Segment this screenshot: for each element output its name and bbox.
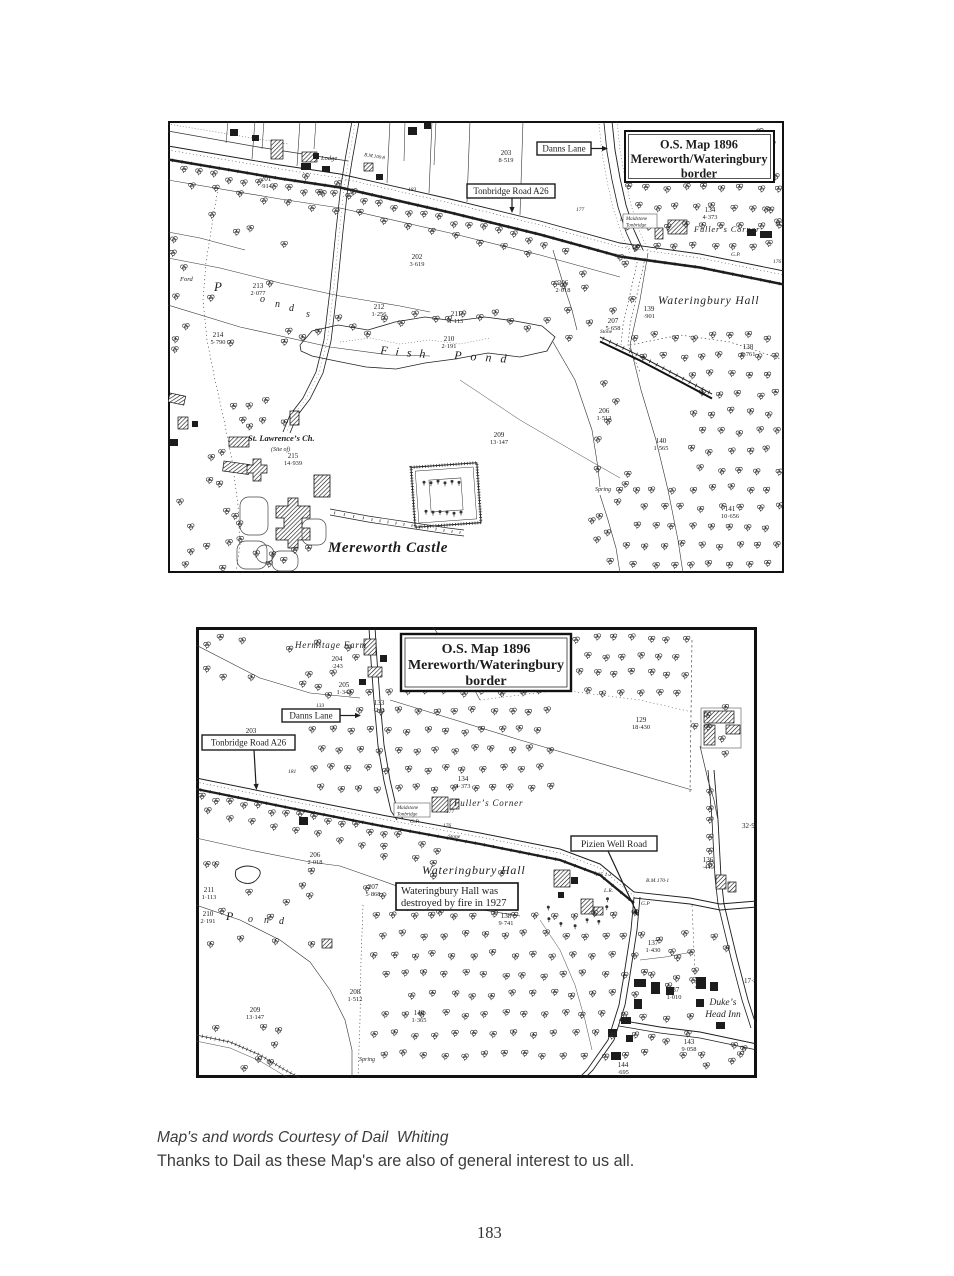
svg-text:129: 129	[636, 716, 647, 724]
svg-text:17·81: 17·81	[744, 977, 757, 985]
svg-text:Ford: Ford	[179, 276, 194, 283]
svg-text:181: 181	[288, 769, 297, 775]
svg-text:Wateringbury Hall: Wateringbury Hall	[658, 295, 759, 307]
svg-text:1·512: 1·512	[597, 415, 612, 422]
svg-text:215: 215	[288, 452, 299, 460]
svg-text:G.P.: G.P.	[410, 819, 419, 825]
svg-text:1·512: 1·512	[348, 996, 363, 1003]
svg-text:1·343: 1·343	[337, 689, 352, 696]
svg-text:Lodge: Lodge	[320, 155, 337, 162]
svg-text:137: 137	[648, 939, 659, 947]
svg-text:207: 207	[608, 317, 619, 325]
svg-text:205: 205	[339, 681, 350, 689]
svg-text:4·373: 4·373	[456, 783, 471, 790]
svg-text:Wateringbury Hall: Wateringbury Hall	[422, 863, 526, 877]
svg-text:213: 213	[253, 282, 264, 290]
svg-text:·243: ·243	[331, 663, 343, 670]
svg-text:9·741: 9·741	[499, 920, 514, 927]
svg-text:Mereworth/Wateringbury: Mereworth/Wateringbury	[408, 658, 564, 673]
svg-text:Tonbridge Road A26: Tonbridge Road A26	[473, 186, 549, 196]
svg-text:18·430: 18·430	[632, 724, 650, 731]
svg-text:·695: ·695	[617, 1069, 629, 1076]
svg-text:9·761: 9·761	[741, 351, 756, 358]
svg-text:Mereworth/Wateringbury: Mereworth/Wateringbury	[630, 152, 768, 166]
svg-text:Maidstone: Maidstone	[396, 806, 419, 811]
svg-text:176: 176	[773, 259, 782, 265]
svg-text:14·939: 14·939	[284, 460, 302, 467]
svg-text:212: 212	[374, 303, 385, 311]
svg-text:St. Lawrenceʼs Ch.: St. Lawrenceʼs Ch.	[248, 433, 315, 443]
svg-text:O.S. Map 1896: O.S. Map 1896	[660, 138, 738, 152]
svg-text:139: 139	[644, 305, 655, 313]
svg-text:208: 208	[350, 988, 361, 996]
svg-text:s: s	[306, 309, 310, 320]
svg-text:4·373: 4·373	[703, 214, 718, 221]
svg-text:Tonbridge: Tonbridge	[397, 813, 418, 818]
svg-text:209: 209	[250, 1006, 261, 1014]
svg-text:border: border	[681, 167, 718, 181]
svg-text:Head Inn: Head Inn	[704, 1010, 741, 1020]
svg-text:5·790: 5·790	[211, 339, 226, 346]
svg-text:2·191: 2·191	[201, 918, 216, 925]
svg-text:Danns Lane: Danns Lane	[542, 144, 585, 154]
svg-text:13·147: 13·147	[490, 439, 509, 446]
svg-text:133: 133	[374, 699, 385, 707]
svg-text:134: 134	[705, 206, 716, 214]
svg-text:204: 204	[332, 655, 343, 663]
svg-text:Stone: Stone	[448, 834, 461, 840]
svg-text:2·018: 2·018	[556, 287, 571, 294]
svg-text:Wateringbury Hall was: Wateringbury Hall was	[401, 886, 498, 897]
svg-text:P: P	[213, 279, 222, 294]
svg-text:1·430: 1·430	[646, 947, 661, 954]
svg-text:133: 133	[316, 703, 325, 709]
svg-text:137: 137	[669, 986, 680, 994]
svg-text:136: 136	[703, 856, 714, 864]
svg-text:203: 203	[246, 727, 257, 735]
svg-text:207: 207	[368, 883, 379, 891]
svg-text:135 1·3: 135 1·3	[595, 872, 612, 878]
svg-text:9·058: 9·058	[682, 1046, 697, 1053]
svg-text:·449: ·449	[702, 864, 714, 871]
svg-text:P: P	[225, 909, 234, 923]
svg-text:1·113: 1·113	[202, 894, 217, 901]
svg-text:209: 209	[494, 431, 505, 439]
svg-text:Stone: Stone	[600, 329, 613, 335]
svg-text:32·91: 32·91	[742, 822, 757, 830]
svg-text:Hermitage Farm: Hermitage Farm	[294, 640, 367, 650]
svg-text:o: o	[260, 294, 265, 305]
svg-text:206: 206	[599, 407, 610, 415]
svg-text:177: 177	[576, 207, 585, 213]
svg-text:1·256: 1·256	[372, 311, 387, 318]
svg-text:10·656: 10·656	[721, 513, 739, 520]
svg-text:1·365: 1·365	[412, 1017, 427, 1024]
svg-text:134: 134	[458, 775, 469, 783]
svg-text:138: 138	[501, 912, 512, 920]
svg-text:210: 210	[444, 335, 455, 343]
svg-text:G.P.: G.P.	[731, 252, 740, 258]
svg-text:13·147: 13·147	[246, 1014, 265, 1021]
svg-text:n: n	[264, 915, 269, 926]
svg-text:Tonbridge: Tonbridge	[626, 224, 647, 229]
svg-text:·914: ·914	[260, 183, 273, 190]
svg-text:L.R.: L.R.	[603, 888, 613, 894]
svg-text:3·619: 3·619	[410, 261, 425, 268]
svg-text:Mereworth Castle: Mereworth Castle	[327, 540, 448, 556]
svg-text:Spring: Spring	[595, 487, 611, 493]
svg-text:214: 214	[213, 331, 224, 339]
svg-text:Pizien Well Road: Pizien Well Road	[581, 840, 647, 850]
svg-text:B.M.170·1: B.M.170·1	[646, 878, 669, 884]
svg-text:143: 143	[684, 1038, 695, 1046]
svg-text:8·519: 8·519	[499, 157, 514, 164]
svg-text:141: 141	[725, 505, 736, 513]
svg-text:Maidstone: Maidstone	[625, 217, 648, 222]
svg-text:G.P: G.P	[641, 901, 650, 907]
svg-text:1·565: 1·565	[654, 445, 669, 452]
svg-text:Dukeʼs: Dukeʼs	[709, 998, 737, 1008]
svg-text:Fullerʼs Corner: Fullerʼs Corner	[693, 224, 760, 234]
svg-text:destroyed by fire in 1927: destroyed by fire in 1927	[401, 898, 507, 909]
svg-text:o: o	[248, 914, 253, 925]
svg-text:206: 206	[310, 851, 321, 859]
svg-text:201: 201	[261, 175, 272, 183]
svg-text:183: 183	[408, 187, 417, 193]
svg-text:O.S. Map 1896: O.S. Map 1896	[442, 642, 531, 657]
svg-text:·241: ·241	[373, 707, 385, 714]
svg-text:211: 211	[204, 886, 215, 894]
svg-text:211: 211	[451, 310, 462, 318]
svg-text:210: 210	[203, 910, 214, 918]
svg-text:202: 202	[412, 253, 423, 261]
svg-text:5·868: 5·868	[366, 891, 381, 898]
svg-text:144: 144	[618, 1061, 629, 1069]
svg-text:138: 138	[743, 343, 754, 351]
svg-text:140: 140	[656, 437, 667, 445]
svg-text:206: 206	[558, 279, 569, 287]
svg-text:Fullerʼs Corner: Fullerʼs Corner	[453, 798, 523, 808]
svg-text:176: 176	[443, 823, 452, 829]
svg-text:1·010: 1·010	[667, 994, 682, 1001]
svg-text:border: border	[465, 674, 506, 689]
svg-text:203: 203	[501, 149, 512, 157]
svg-text:n: n	[275, 299, 280, 310]
svg-text:·901: ·901	[643, 313, 655, 320]
svg-text:2·018: 2·018	[308, 859, 323, 866]
svg-text:Tonbridge Road A26: Tonbridge Road A26	[211, 738, 287, 748]
svg-text:Spring: Spring	[359, 1057, 375, 1063]
svg-text:140: 140	[414, 1009, 425, 1017]
svg-text:1·113: 1·113	[449, 318, 464, 325]
svg-text:177: 177	[446, 809, 455, 815]
svg-text:Danns Lane: Danns Lane	[289, 711, 332, 721]
